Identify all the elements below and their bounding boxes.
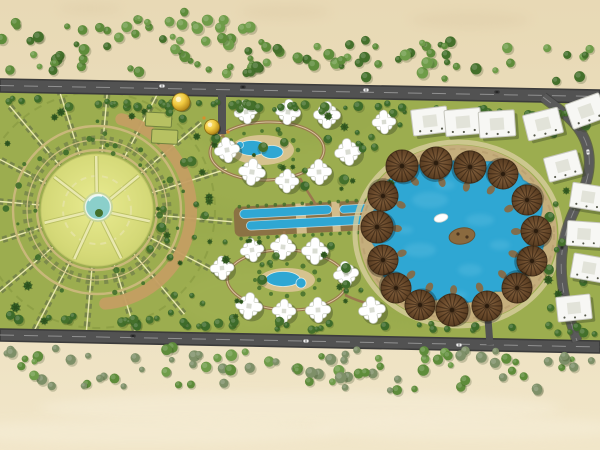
- hotel-building: [556, 294, 596, 326]
- dome-highlight: [208, 123, 213, 128]
- pond-islet: [95, 209, 103, 217]
- car: [586, 149, 589, 154]
- shrub: [181, 190, 185, 194]
- pool-landscaping: [317, 278, 322, 283]
- shrub: [163, 180, 166, 183]
- shrub: [105, 143, 109, 147]
- resort-master-plan: [0, 0, 600, 450]
- shrub: [102, 131, 107, 136]
- car: [303, 339, 308, 342]
- pool-landscaping: [285, 262, 289, 266]
- shrub: [33, 209, 37, 213]
- shrub: [37, 156, 42, 161]
- shrub: [121, 268, 125, 272]
- car: [130, 334, 135, 337]
- shrub: [15, 182, 22, 189]
- shrub: [3, 205, 10, 212]
- dome-highlight: [176, 97, 181, 102]
- pool-landscaping: [260, 129, 264, 133]
- pool-landscaping: [257, 270, 262, 275]
- garden-plot: [151, 129, 178, 144]
- car: [456, 343, 461, 346]
- swimming-pool: [266, 272, 300, 287]
- shrub: [112, 143, 117, 148]
- water-texture: [404, 243, 436, 257]
- shrub: [112, 290, 117, 295]
- golden-dome: [205, 120, 220, 135]
- pool-landscaping: [291, 138, 296, 143]
- island-palm: [465, 235, 468, 238]
- water-texture: [412, 192, 448, 208]
- hotel-building: [478, 110, 519, 142]
- shrub: [138, 163, 142, 167]
- water-texture: [490, 240, 510, 250]
- pool-landscaping: [253, 278, 257, 282]
- shrub: [111, 151, 116, 156]
- shrub: [60, 288, 64, 292]
- water-texture: [458, 264, 482, 276]
- car: [240, 85, 245, 88]
- car: [494, 90, 499, 93]
- tree: [562, 187, 570, 195]
- pool-landscaping: [300, 264, 305, 269]
- car: [363, 88, 368, 91]
- master-plan-svg: [0, 0, 600, 450]
- pool-landscaping: [269, 292, 273, 296]
- pool-landscaping: [300, 291, 305, 296]
- shrub: [96, 119, 100, 123]
- water-texture: [466, 214, 494, 226]
- sand-shade: [240, 4, 330, 20]
- car: [159, 84, 164, 87]
- pool-landscaping: [296, 148, 301, 153]
- shrub: [176, 227, 179, 230]
- shrub: [35, 254, 41, 260]
- pool-landscaping: [285, 294, 289, 298]
- shrub: [167, 176, 174, 183]
- accent-marker: [202, 116, 205, 119]
- pool-landscaping: [291, 158, 295, 162]
- pool-landscaping: [313, 286, 317, 290]
- shrub: [16, 222, 19, 225]
- swimming-pool: [296, 278, 306, 288]
- shrub: [113, 267, 119, 273]
- shrub: [141, 281, 145, 285]
- shrub: [138, 147, 143, 152]
- golden-dome: [172, 93, 190, 111]
- pool-landscaping: [312, 270, 317, 275]
- island-palm: [456, 232, 459, 235]
- shrub: [91, 138, 95, 142]
- sand-shade: [58, 3, 122, 15]
- accent-marker: [226, 130, 229, 133]
- pool-landscaping: [242, 132, 246, 136]
- sand-shade: [410, 11, 530, 29]
- hotel-building: [566, 220, 600, 251]
- shrub: [63, 150, 69, 156]
- shrub: [22, 162, 26, 166]
- shrub: [27, 228, 30, 231]
